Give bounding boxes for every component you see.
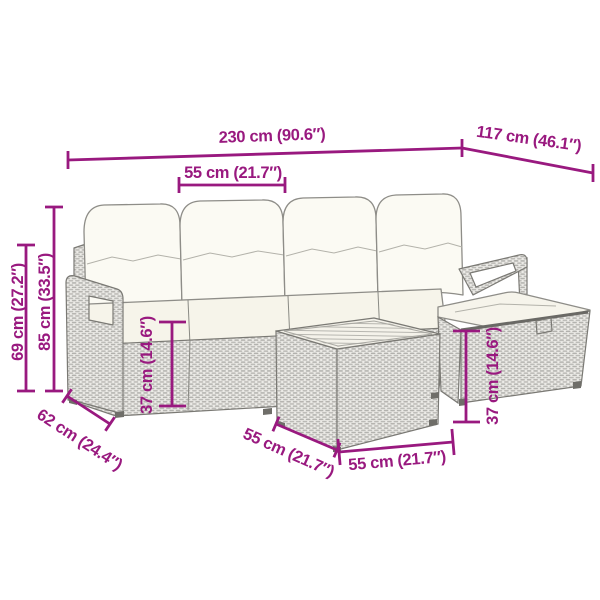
dim-label-total-depth: 117 cm (46.1″) xyxy=(475,123,582,156)
back-cushion-3 xyxy=(283,197,378,303)
dim-armrest-height: 69 cm (27.2″) xyxy=(9,245,35,391)
table-left-face xyxy=(276,331,337,450)
dim-total-depth: 117 cm (46.1″) xyxy=(462,123,593,182)
dim-label-sofa-depth: 62 cm (24.4″) xyxy=(34,406,126,474)
dim-label-seat-width: 55 cm (21.7″) xyxy=(184,164,282,182)
footstool-latch xyxy=(536,318,552,334)
dim-label-armrest-height: 69 cm (27.2″) xyxy=(9,263,27,361)
dimension-diagram: 230 cm (90.6″) 117 cm (46.1″) 55 cm (21.… xyxy=(0,0,600,600)
dim-label-seat-height: 37 cm (14.6″) xyxy=(138,316,156,414)
dim-total-width: 230 cm (90.6″) xyxy=(68,125,462,169)
footstool xyxy=(438,292,590,403)
left-armrest xyxy=(66,276,123,414)
dim-label-backrest-height: 85 cm (33.5″) xyxy=(36,253,54,351)
dim-backrest-height: 85 cm (33.5″) xyxy=(36,207,63,391)
dim-label-total-width: 230 cm (90.6″) xyxy=(218,125,325,147)
back-cushion-4 xyxy=(376,194,463,299)
diagram-canvas: 230 cm (90.6″) 117 cm (46.1″) 55 cm (21.… xyxy=(0,0,600,600)
dim-seat-width: 55 cm (21.7″) xyxy=(179,164,285,193)
right-armrest xyxy=(459,255,527,295)
dim-label-table-width: 55 cm (21.7″) xyxy=(348,448,447,474)
coffee-table xyxy=(272,318,444,450)
table-front-face xyxy=(337,334,440,450)
dim-label-footstool-height: 37 cm (14.6″) xyxy=(484,327,502,425)
